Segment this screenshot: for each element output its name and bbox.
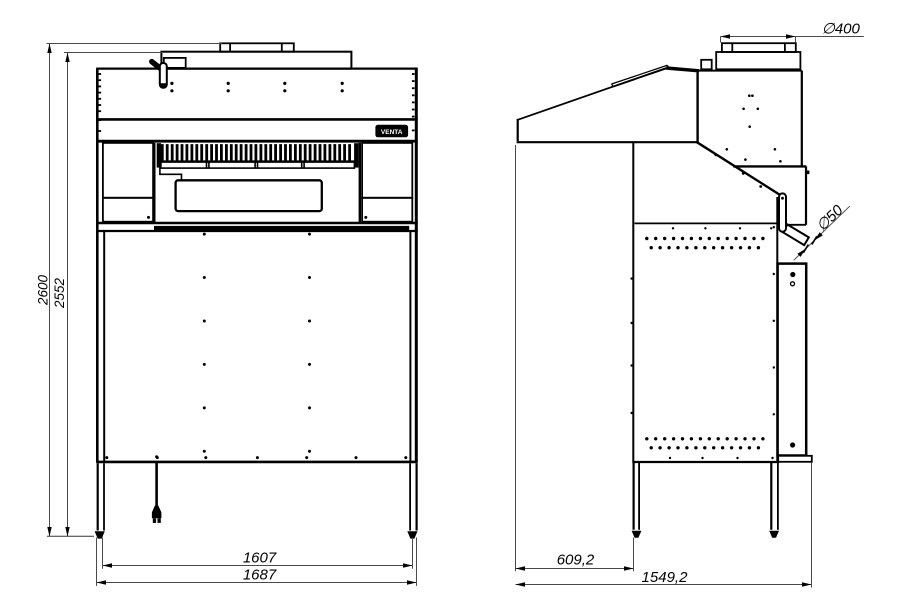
svg-text:609,2: 609,2 [557,551,595,568]
svg-text:1549,2: 1549,2 [642,569,689,586]
svg-text:2552: 2552 [52,277,67,309]
svg-text:∅50: ∅50 [813,201,847,234]
svg-text:1687: 1687 [243,567,277,584]
svg-text:VENTA: VENTA [381,129,403,136]
svg-text:∅400: ∅400 [822,21,861,38]
svg-text:2600: 2600 [36,274,51,306]
svg-text:1607: 1607 [243,550,277,567]
